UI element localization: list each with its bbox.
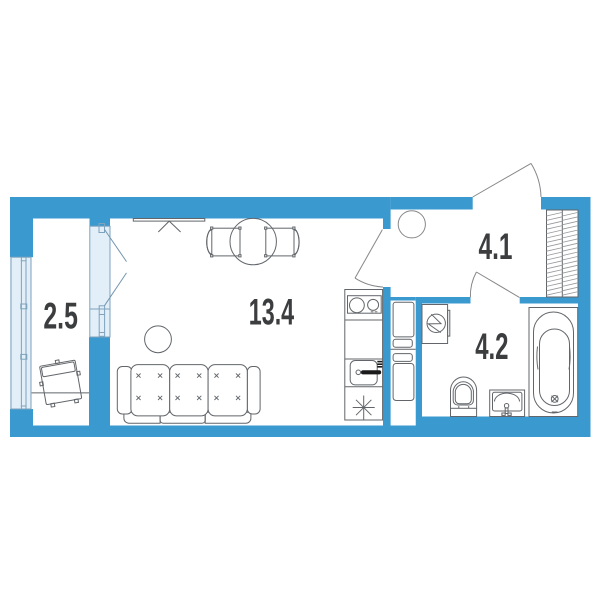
svg-text:13.4: 13.4 [249,291,295,333]
svg-text:2.5: 2.5 [43,294,77,336]
svg-text:4.2: 4.2 [475,326,508,368]
svg-text:4.1: 4.1 [479,226,513,267]
